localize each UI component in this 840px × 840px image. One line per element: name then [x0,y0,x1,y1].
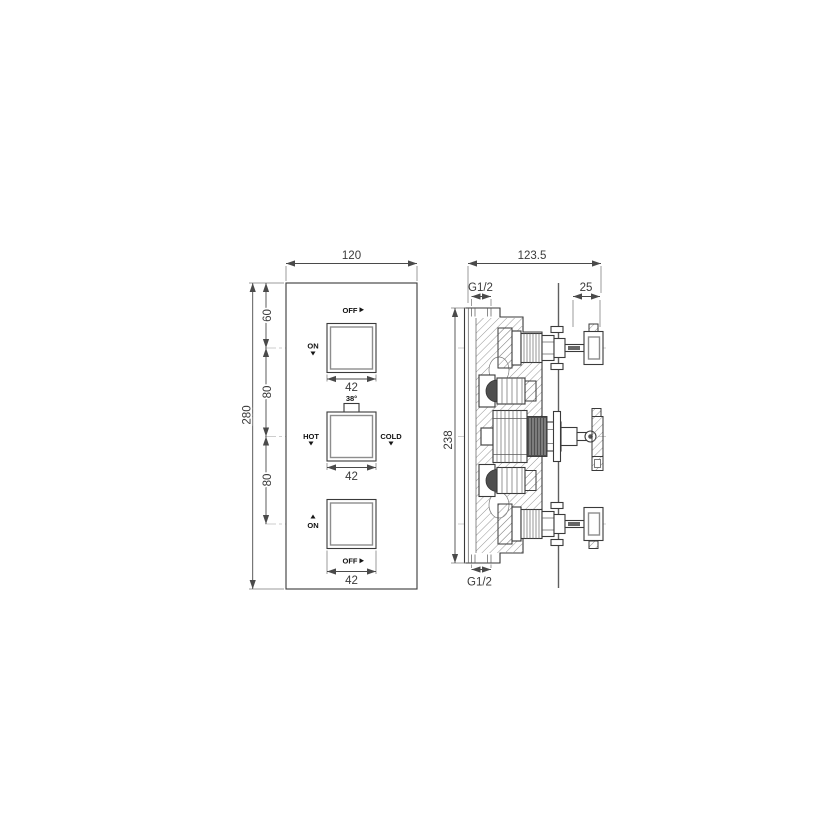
dim-inlet-top: G1/2 [468,282,493,306]
dim-plate-height-value: 280 [242,405,254,424]
dim-spacing-lower-value: 80 [262,474,274,487]
hot-label: HOT [303,432,319,441]
inlet-top-label: G1/2 [468,282,493,294]
knob-top-off-label: OFF [343,306,358,315]
dim-plate-height: 280 [242,283,285,589]
dim-knob-top-size-value: 42 [345,382,358,394]
front-view: OFF ON 38° HOT COLD ON OFF [242,250,418,589]
technical-drawing-page: OFF ON 38° HOT COLD ON OFF [0,0,840,840]
spindle [568,522,580,526]
dim-knob-bottom-size-value: 42 [345,575,358,587]
spindle [568,346,580,350]
knob-bottom-on-label: ON [307,521,318,530]
knob-top-on-label: ON [307,342,318,351]
dim-knob-middle-size-value: 42 [345,471,358,483]
dim-protrusion-value: 25 [580,282,593,294]
dim-inlet-bottom: G1/2 [467,565,492,589]
fixing-screw [589,324,598,332]
fixing-screw [589,541,598,549]
shutoff-cartridge-top [498,324,603,370]
dim-body-height: 238 [443,308,466,563]
cold-label: COLD [380,432,402,441]
dim-plate-width: 120 [286,250,417,281]
dim-plate-width-value: 120 [342,250,361,262]
dim-body-height-value: 238 [443,430,455,449]
dim-knob-spacing-chain: 60 80 80 [262,283,274,524]
inlet-bottom-label: G1/2 [467,577,492,589]
dim-protrusion: 25 [573,282,600,327]
dim-body-depth: 123.5 [468,250,601,303]
knob-top-outer [327,324,376,373]
dim-top-offset-value: 60 [262,309,274,322]
knob-bottom-outer [327,500,376,549]
dim-spacing-upper-value: 80 [262,386,274,399]
side-section-view: 123.5 G1/2 25 238 G1/2 [443,250,606,589]
temp-38-label: 38° [346,394,357,403]
knob-middle-tab [344,404,359,413]
knob-bottom-off-label: OFF [343,557,358,566]
fixing-screw [592,409,601,417]
knob-middle-outer [327,412,376,461]
dim-body-depth-value: 123.5 [518,250,547,262]
valve-technical-drawing: OFF ON 38° HOT COLD ON OFF [0,0,840,840]
